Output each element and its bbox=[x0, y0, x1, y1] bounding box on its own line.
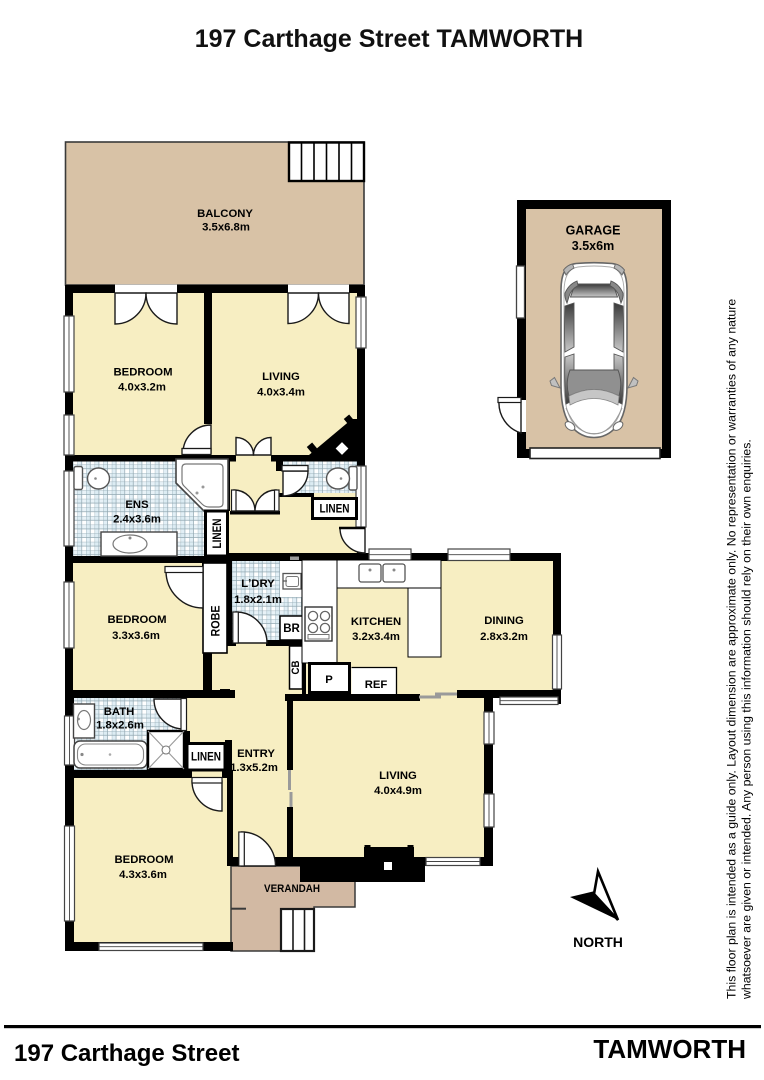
svg-text:GARAGE: GARAGE bbox=[566, 224, 621, 238]
svg-text:3.3x3.6m: 3.3x3.6m bbox=[112, 630, 160, 642]
svg-text:This floor plan is intended as: This floor plan is intended as a guide o… bbox=[725, 299, 739, 999]
svg-text:1.8x2.6m: 1.8x2.6m bbox=[96, 720, 144, 732]
svg-text:NORTH: NORTH bbox=[573, 934, 623, 950]
svg-text:1.3x5.2m: 1.3x5.2m bbox=[230, 762, 278, 774]
svg-text:2.8x3.2m: 2.8x3.2m bbox=[480, 631, 528, 643]
svg-text:KITCHEN: KITCHEN bbox=[351, 616, 401, 628]
svg-text:4.3x3.6m: 4.3x3.6m bbox=[119, 869, 167, 881]
svg-text:197 Carthage Street TAMWORTH: 197 Carthage Street TAMWORTH bbox=[195, 25, 584, 53]
svg-text:BEDROOM: BEDROOM bbox=[108, 614, 167, 626]
svg-text:4.0x3.2m: 4.0x3.2m bbox=[118, 382, 166, 394]
svg-text:1.8x2.1m: 1.8x2.1m bbox=[234, 594, 282, 606]
svg-text:3.5x6m: 3.5x6m bbox=[572, 239, 614, 253]
svg-text:ROBE: ROBE bbox=[209, 606, 223, 637]
svg-text:ENS: ENS bbox=[125, 499, 149, 511]
svg-text:3.5x6.8m: 3.5x6.8m bbox=[202, 222, 250, 234]
svg-text:BR: BR bbox=[283, 623, 300, 635]
svg-text:TAMWORTH: TAMWORTH bbox=[593, 1034, 746, 1064]
svg-text:LʼDRY: LʼDRY bbox=[241, 578, 275, 590]
svg-text:BALCONY: BALCONY bbox=[197, 208, 253, 220]
svg-text:whatsoever are given or intend: whatsoever are given or intended. Any pe… bbox=[740, 439, 754, 1000]
svg-text:ENTRY: ENTRY bbox=[237, 748, 275, 760]
svg-text:4.0x4.9m: 4.0x4.9m bbox=[374, 785, 422, 797]
svg-text:BEDROOM: BEDROOM bbox=[115, 854, 174, 866]
svg-text:LIVING: LIVING bbox=[379, 770, 417, 782]
svg-text:REF: REF bbox=[365, 679, 388, 691]
svg-text:VERANDAH: VERANDAH bbox=[264, 883, 320, 895]
svg-text:LINEN: LINEN bbox=[320, 504, 350, 516]
svg-text:3.2x3.4m: 3.2x3.4m bbox=[352, 631, 400, 643]
svg-text:P: P bbox=[325, 674, 333, 686]
svg-text:4.0x3.4m: 4.0x3.4m bbox=[257, 387, 305, 399]
svg-text:BATH: BATH bbox=[104, 706, 135, 718]
svg-text:LIVING: LIVING bbox=[262, 371, 300, 383]
svg-text:DINING: DINING bbox=[484, 615, 524, 627]
svg-text:LINEN: LINEN bbox=[191, 752, 221, 764]
svg-text:2.4x3.6m: 2.4x3.6m bbox=[113, 514, 161, 526]
svg-text:LINEN: LINEN bbox=[212, 519, 224, 549]
svg-text:CB: CB bbox=[290, 660, 302, 674]
svg-text:BEDROOM: BEDROOM bbox=[114, 367, 173, 379]
svg-text:197 Carthage Street: 197 Carthage Street bbox=[14, 1040, 239, 1067]
